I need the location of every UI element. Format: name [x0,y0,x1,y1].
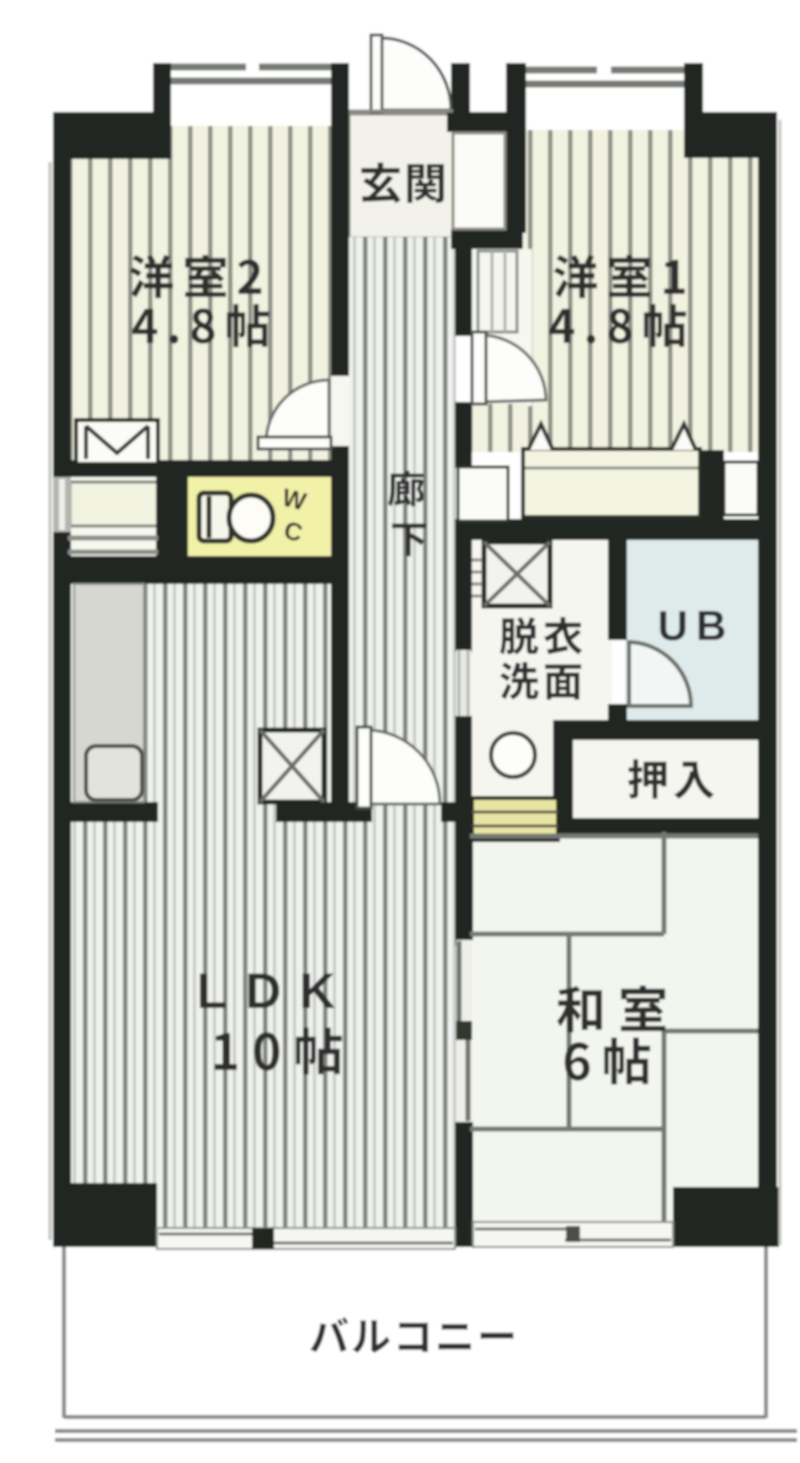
svg-text:UB: UB [658,602,735,649]
svg-text:LDK: LDK [197,963,354,1019]
